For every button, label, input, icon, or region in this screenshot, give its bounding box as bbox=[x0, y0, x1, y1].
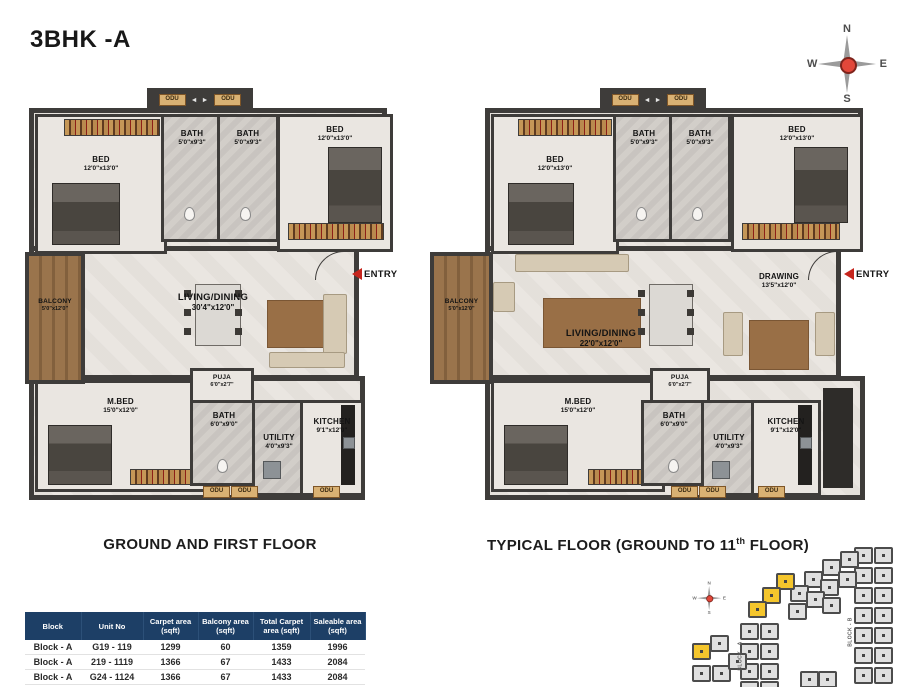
keyplan-unit bbox=[854, 627, 873, 644]
toilet-icon bbox=[636, 207, 647, 221]
room-dims: 6'0"x2'7" bbox=[210, 382, 233, 389]
table-cell: Block - A bbox=[25, 670, 81, 685]
room-name: BED bbox=[788, 125, 806, 135]
keyplan-unit bbox=[854, 647, 873, 664]
keyplan-unit bbox=[760, 681, 779, 687]
keyplan-unit bbox=[874, 627, 893, 644]
room-bath-2: BATH 5'0"x9'3" bbox=[217, 114, 279, 242]
room-kitchen: KITCHEN 9'1"x12'0" bbox=[300, 400, 364, 496]
wardrobe bbox=[518, 119, 612, 136]
dining-chairs bbox=[638, 290, 645, 297]
room-bed-2: BED 12'0"x13'0" bbox=[731, 114, 863, 252]
entry-label: ENTRY bbox=[856, 269, 889, 280]
entry-label: ENTRY bbox=[364, 269, 397, 280]
room-bed-1: BED 12'0"x13'0" bbox=[491, 114, 619, 254]
room-name: KITCHEN bbox=[768, 417, 805, 427]
floor-plan-ground-first: ODU ◄ ► ODU BED 12'0"x13'0" BATH 5'0"x9'… bbox=[25, 88, 395, 520]
room-name: BATH bbox=[689, 129, 711, 139]
room-bed-2: BED 12'0"x13'0" bbox=[277, 114, 393, 252]
caption-ground-first-floor: GROUND AND FIRST FLOOR bbox=[25, 536, 395, 553]
table-cell: Block - A bbox=[25, 640, 81, 655]
table-cell: 1433 bbox=[253, 670, 310, 685]
room-dims: 6'0"x2'7" bbox=[668, 382, 691, 389]
room-bath-3: BATH 6'0"x9'0" bbox=[190, 400, 258, 486]
odu-label: ODU bbox=[203, 486, 230, 498]
keyplan: N S W E BLOCK - A BLOCK - B bbox=[682, 545, 897, 687]
room-kitchen: KITCHEN 9'1"x12'0" bbox=[751, 400, 821, 496]
room-dims: 9'1"x12'0" bbox=[771, 427, 802, 435]
odu-label: ODU bbox=[671, 486, 698, 498]
table-cell: 67 bbox=[198, 655, 253, 670]
keyplan-unit bbox=[800, 671, 819, 687]
room-bath-2: BATH 5'0"x9'3" bbox=[669, 114, 731, 242]
room-dims: 9'1"x12'0" bbox=[317, 427, 348, 435]
sofa bbox=[815, 312, 835, 356]
room-name: BATH bbox=[633, 129, 655, 139]
entry-arrow-icon bbox=[844, 268, 854, 280]
room-name: PUJA bbox=[671, 374, 689, 382]
table-cell: G19 - 119 bbox=[81, 640, 143, 655]
toilet-icon bbox=[240, 207, 251, 221]
keyplan-unit bbox=[838, 571, 857, 588]
rug bbox=[749, 320, 809, 370]
room-dims: 12'0"x13'0" bbox=[84, 165, 119, 173]
room-balcony: BALCONY 5'0"x12'0" bbox=[25, 252, 85, 384]
table-cell: 67 bbox=[198, 670, 253, 685]
odu-label: ODU bbox=[231, 486, 258, 498]
entry-marker: ENTRY bbox=[844, 268, 889, 280]
area-table-body: Block - AG19 - 11912996013591996Block - … bbox=[25, 640, 365, 687]
compass-north-label: N bbox=[843, 23, 851, 35]
table-header-cell: Saleable area (sqft) bbox=[310, 612, 365, 640]
entry-marker: ENTRY bbox=[352, 268, 397, 280]
keyplan-unit bbox=[874, 647, 893, 664]
room-bed-1: BED 12'0"x13'0" bbox=[35, 114, 167, 254]
table-cell: G24 - 1124 bbox=[81, 670, 143, 685]
room-dims: 6'0"x9'0" bbox=[210, 421, 237, 429]
keyplan-unit bbox=[740, 623, 759, 640]
room-name: BED bbox=[92, 155, 110, 165]
sofa bbox=[723, 312, 743, 356]
room-master-bed: M.BED 15'0"x12'0" bbox=[35, 380, 206, 492]
service-shaft bbox=[823, 388, 853, 488]
room-name: M.BED bbox=[565, 397, 592, 407]
odu-label: ODU bbox=[612, 94, 639, 106]
room-living-dining: LIVING/DINING 30'4"x12'0" bbox=[77, 248, 349, 368]
keyplan-unit bbox=[788, 603, 807, 620]
table-header-cell: Carpet area (sqft) bbox=[143, 612, 198, 640]
wardrobe bbox=[742, 223, 840, 240]
keyplan-unit bbox=[740, 681, 759, 687]
room-bath-1: BATH 5'0"x9'3" bbox=[613, 114, 675, 242]
odu-label: ODU bbox=[159, 94, 186, 106]
wardrobe bbox=[288, 223, 384, 240]
room-living-dining: LIVING/DINING 22'0"x12'0" bbox=[485, 248, 717, 368]
table-header-cell: Unit No bbox=[81, 612, 143, 640]
wardrobe bbox=[64, 119, 160, 136]
room-name: UTILITY bbox=[713, 433, 745, 443]
odu-label: ODU bbox=[758, 486, 785, 498]
page-title: 3BHK -A bbox=[30, 26, 131, 54]
room-dims: 5'0"x9'3" bbox=[234, 139, 261, 147]
table-cell: 1366 bbox=[143, 655, 198, 670]
lift-lobby: ODU ◄ ► ODU bbox=[147, 88, 253, 112]
room-name: BATH bbox=[237, 129, 259, 139]
room-name: BALCONY bbox=[445, 298, 479, 306]
keyplan-units bbox=[682, 545, 897, 687]
table-cell: Block - A bbox=[25, 655, 81, 670]
odu-label: ODU bbox=[699, 486, 726, 498]
sofa bbox=[515, 254, 629, 272]
keyplan-unit bbox=[854, 587, 873, 604]
room-dims: 4'0"x9'3" bbox=[265, 443, 292, 451]
room-name: PUJA bbox=[213, 374, 231, 382]
keyplan-unit bbox=[710, 635, 729, 652]
table-row: Block - AG24 - 112413666714332084 bbox=[25, 670, 365, 685]
bed-furniture bbox=[508, 183, 574, 245]
washing-machine-icon bbox=[712, 461, 730, 479]
room-dims: 15'0"x12'0" bbox=[103, 407, 138, 415]
room-dims: 5'0"x12'0" bbox=[42, 306, 68, 313]
sofa bbox=[269, 352, 345, 368]
keyplan-unit bbox=[874, 587, 893, 604]
keyplan-unit bbox=[854, 667, 873, 684]
floor-plan-typical: ODU ◄ ► ODU BED 12'0"x13'0" BATH 5'0"x9'… bbox=[428, 88, 868, 520]
sink-icon bbox=[343, 437, 355, 449]
lift-arrows-icon: ◄ ► bbox=[644, 97, 663, 104]
lift-lobby: ODU ◄ ► ODU bbox=[600, 88, 706, 112]
room-dims: 6'0"x9'0" bbox=[660, 421, 687, 429]
lift-arrows-icon: ◄ ► bbox=[191, 97, 210, 104]
bed-furniture bbox=[328, 147, 382, 223]
table-cell: 1366 bbox=[143, 670, 198, 685]
room-dims: 12'0"x13'0" bbox=[318, 135, 353, 143]
table-row: Block - A219 - 111913666714332084 bbox=[25, 655, 365, 670]
keyplan-unit bbox=[874, 567, 893, 584]
room-name: LIVING/DINING bbox=[566, 328, 636, 339]
keyplan-unit bbox=[874, 547, 893, 564]
table-cell: 2084 bbox=[310, 655, 365, 670]
washing-machine-icon bbox=[263, 461, 281, 479]
room-name: M.BED bbox=[107, 397, 134, 407]
room-dims: 4'0"x9'3" bbox=[715, 443, 742, 451]
keyplan-unit bbox=[692, 665, 711, 682]
block-a-label: BLOCK - A bbox=[738, 641, 744, 670]
room-dims: 5'0"x9'3" bbox=[178, 139, 205, 147]
table-cell: 2084 bbox=[310, 670, 365, 685]
room-dims: 12'0"x13'0" bbox=[538, 165, 573, 173]
room-bath-1: BATH 5'0"x9'3" bbox=[161, 114, 223, 242]
keyplan-unit-highlighted bbox=[692, 643, 711, 660]
keyplan-unit bbox=[874, 607, 893, 624]
wardrobe bbox=[130, 469, 198, 485]
compass-west-label: W bbox=[807, 58, 817, 70]
keyplan-unit bbox=[760, 663, 779, 680]
keyplan-unit bbox=[760, 643, 779, 660]
keyplan-unit bbox=[854, 607, 873, 624]
keyplan-unit bbox=[760, 623, 779, 640]
room-balcony: BALCONY 5'0"x12'0" bbox=[430, 252, 493, 384]
room-name: LIVING/DINING bbox=[178, 292, 248, 303]
table-header-cell: Balcony area (sqft) bbox=[198, 612, 253, 640]
toilet-icon bbox=[668, 459, 679, 473]
room-dims: 13'5"x12'0" bbox=[762, 282, 797, 290]
room-name: DRAWING bbox=[759, 272, 799, 282]
table-header-cell: Total Carpet area (sqft) bbox=[253, 612, 310, 640]
sofa bbox=[493, 282, 515, 312]
room-utility: UTILITY 4'0"x9'3" bbox=[701, 400, 757, 496]
keyplan-unit bbox=[822, 597, 841, 614]
room-dims: 5'0"x9'3" bbox=[630, 139, 657, 147]
compass-center-dot bbox=[840, 57, 857, 74]
room-master-bed: M.BED 15'0"x12'0" bbox=[491, 380, 665, 492]
sink-icon bbox=[800, 437, 812, 449]
keyplan-unit bbox=[840, 551, 859, 568]
keyplan-unit bbox=[874, 667, 893, 684]
area-table-header: BlockUnit NoCarpet area (sqft)Balcony ar… bbox=[25, 612, 365, 640]
page: 3BHK -A N S W E ODU ◄ ► ODU BED 12'0"x13… bbox=[0, 0, 900, 687]
table-cell: 219 - 1119 bbox=[81, 655, 143, 670]
keyplan-unit bbox=[818, 671, 837, 687]
bed-furniture bbox=[52, 183, 120, 245]
table-row: Block - AG19 - 11912996013591996 bbox=[25, 640, 365, 655]
room-utility: UTILITY 4'0"x9'3" bbox=[252, 400, 306, 496]
table-cell: 1299 bbox=[143, 640, 198, 655]
room-name: UTILITY bbox=[263, 433, 295, 443]
odu-label: ODU bbox=[667, 94, 694, 106]
room-dims: 12'0"x13'0" bbox=[780, 135, 815, 143]
room-dims: 15'0"x12'0" bbox=[561, 407, 596, 415]
toilet-icon bbox=[184, 207, 195, 221]
room-name: BATH bbox=[181, 129, 203, 139]
room-name: BATH bbox=[663, 411, 685, 421]
keyplan-unit-highlighted bbox=[748, 601, 767, 618]
room-name: BED bbox=[546, 155, 564, 165]
table-cell: 1996 bbox=[310, 640, 365, 655]
room-name: KITCHEN bbox=[314, 417, 351, 427]
table-header-cell: Block bbox=[25, 612, 81, 640]
area-table: BlockUnit NoCarpet area (sqft)Balcony ar… bbox=[25, 612, 366, 687]
compass-east-label: E bbox=[880, 58, 887, 70]
bed-furniture bbox=[48, 425, 112, 485]
table-cell: 60 bbox=[198, 640, 253, 655]
odu-label: ODU bbox=[313, 486, 340, 498]
room-dims: 5'0"x9'3" bbox=[686, 139, 713, 147]
toilet-icon bbox=[692, 207, 703, 221]
table-cell: 1433 bbox=[253, 655, 310, 670]
room-name: BALCONY bbox=[38, 298, 72, 306]
block-b-label: BLOCK - B bbox=[848, 617, 854, 646]
room-bath-3: BATH 6'0"x9'0" bbox=[641, 400, 707, 486]
room-name: BATH bbox=[213, 411, 235, 421]
entry-arrow-icon bbox=[352, 268, 362, 280]
bed-furniture bbox=[504, 425, 568, 485]
toilet-icon bbox=[217, 459, 228, 473]
caption-text: GROUND AND FIRST FLOOR bbox=[103, 536, 317, 553]
room-dims: 5'0"x12'0" bbox=[448, 306, 474, 313]
room-dims: 30'4"x12'0" bbox=[192, 303, 235, 313]
odu-label: ODU bbox=[214, 94, 241, 106]
room-dims: 22'0"x12'0" bbox=[580, 339, 623, 349]
bed-furniture bbox=[794, 147, 848, 223]
table-cell: 1359 bbox=[253, 640, 310, 655]
room-name: BED bbox=[326, 125, 344, 135]
